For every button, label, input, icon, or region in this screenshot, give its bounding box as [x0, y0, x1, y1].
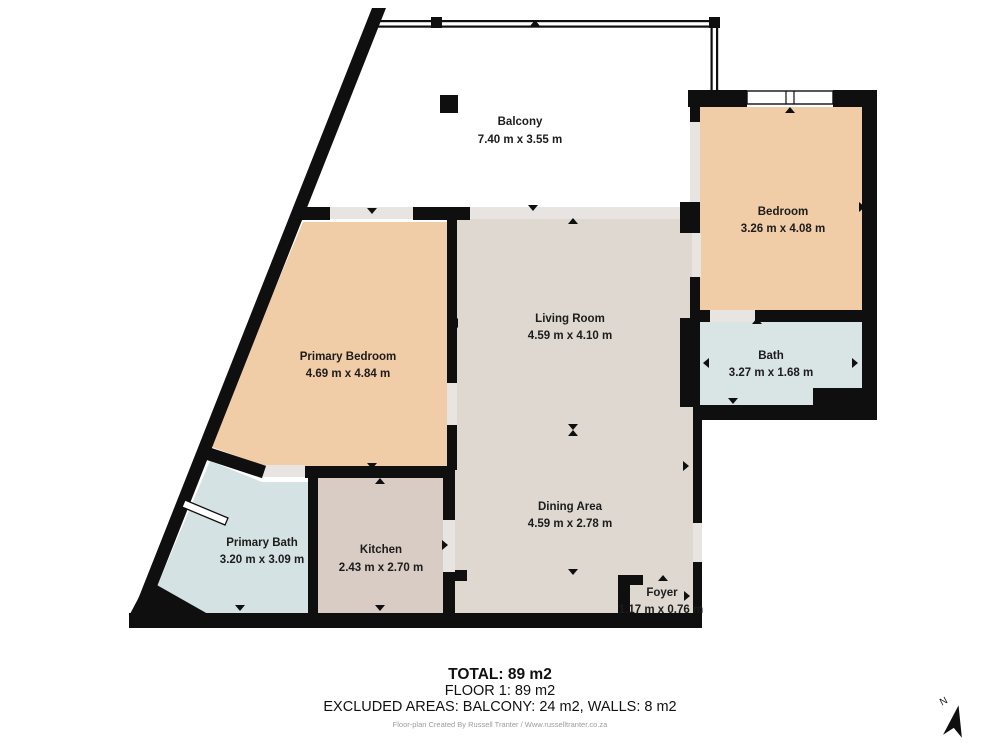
wall-bath-notch — [813, 388, 862, 407]
bedroom-window-icon — [747, 91, 833, 104]
window-frame — [747, 91, 833, 104]
label-bedroom-dims: 3.26 m x 4.08 m — [741, 223, 825, 235]
railing-corner-post — [709, 17, 720, 28]
label-primary-bedroom-name: Primary Bedroom — [300, 351, 397, 363]
wall-primary-bedroom-right-lower — [447, 425, 457, 470]
railing-right-inner — [711, 26, 713, 95]
summary-floor: FLOOR 1: 89 m2 — [0, 683, 1000, 699]
label-dining-area-name: Dining Area — [538, 501, 603, 513]
railing-right-outer — [716, 20, 718, 95]
wall-bedroom-left-1 — [690, 107, 700, 122]
floor-plan-page: Balcony 7.40 m x 3.55 m Bedroom 3.26 m x… — [0, 0, 1000, 750]
summary-total: TOTAL: 89 m2 — [0, 666, 1000, 683]
label-foyer-name: Foyer — [646, 587, 678, 599]
label-balcony-dims: 7.40 m x 3.55 m — [478, 134, 562, 146]
label-foyer-dims: 1.17 m x 0.76 m — [619, 604, 703, 616]
label-dining-area-dims: 4.59 m x 2.78 m — [528, 518, 612, 530]
bath-door — [710, 310, 755, 322]
entry-door — [693, 523, 702, 562]
wall-closet-right-stub — [618, 575, 643, 585]
wall-balcony-int-mid — [413, 207, 470, 220]
summary-excluded: EXCLUDED AREAS: BALCONY: 24 m2, WALLS: 8… — [0, 699, 1000, 715]
primary-bath-door — [263, 465, 305, 477]
credit-line: Floor-plan Created By Russell Tranter / … — [0, 720, 1000, 730]
balcony-slider-living — [470, 207, 682, 219]
wall-kitchen-right-stub — [455, 570, 467, 581]
label-primary-bath-dims: 3.20 m x 3.09 m — [220, 554, 304, 566]
wall-bedroom-top-right — [833, 90, 877, 107]
wall-kitchen-right-upper — [443, 466, 455, 520]
railing-post — [431, 17, 442, 28]
label-living-room-name: Living Room — [535, 313, 605, 325]
wall-primary-bedroom-right-upper — [447, 213, 457, 383]
primary-bedroom-door — [447, 383, 457, 425]
label-bath-name: Bath — [758, 350, 784, 362]
label-kitchen-name: Kitchen — [360, 544, 402, 556]
wall-bath-bottom — [693, 405, 877, 420]
wall-right-main-upper — [693, 407, 702, 523]
summary-footer: TOTAL: 89 m2 FLOOR 1: 89 m2 EXCLUDED ARE… — [0, 666, 1000, 730]
railing-top-inner — [378, 26, 712, 28]
wall-right-main-lower — [693, 562, 702, 628]
wall-primary-bedroom-bottom — [305, 466, 447, 478]
label-living-room-dims: 4.59 m x 4.10 m — [528, 330, 612, 342]
wall-bedroom-bottom — [755, 310, 862, 322]
wall-bedroom-right — [862, 90, 877, 420]
label-balcony-name: Balcony — [498, 116, 543, 128]
floor-plan-drawing: Balcony 7.40 m x 3.55 m Bedroom 3.26 m x… — [0, 0, 1000, 750]
label-bath-dims: 3.27 m x 1.68 m — [729, 367, 813, 379]
wall-bedroom-left-2 — [680, 202, 700, 233]
balcony-railing — [378, 17, 720, 113]
wall-exterior-bottom — [129, 613, 702, 628]
wall-bath-left — [680, 318, 700, 407]
wall-balcony-int-left — [294, 207, 330, 220]
room-living-dining — [455, 218, 693, 613]
railing-top-outer — [378, 20, 718, 22]
wall-kitchen-right-lower — [443, 572, 455, 613]
label-bedroom-name: Bedroom — [758, 206, 808, 218]
bedroom-door — [692, 233, 701, 277]
label-kitchen-dims: 2.43 m x 2.70 m — [339, 562, 423, 574]
balcony-column — [440, 95, 458, 113]
bedroom-window-side — [690, 122, 700, 202]
label-primary-bath-name: Primary Bath — [226, 537, 298, 549]
label-primary-bedroom-dims: 4.69 m x 4.84 m — [306, 368, 390, 380]
